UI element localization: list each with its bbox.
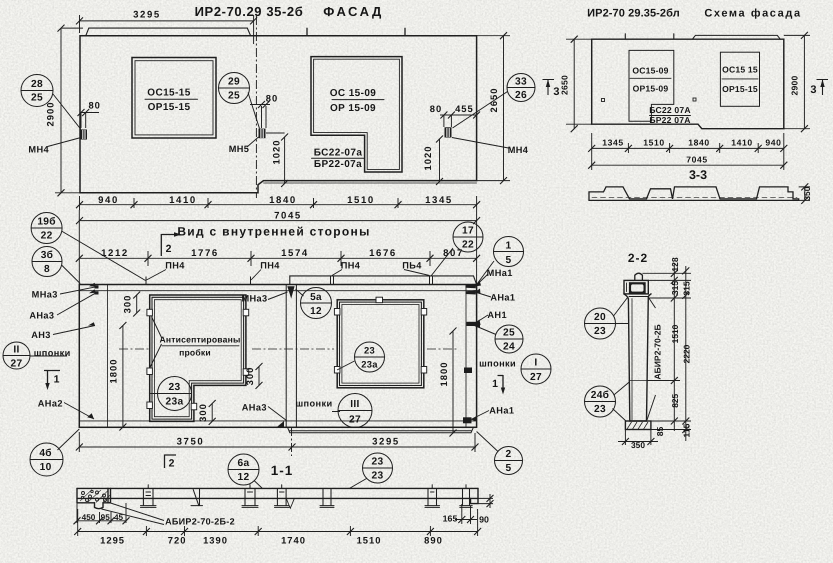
svg-text:22: 22 bbox=[41, 231, 53, 242]
svg-text:940: 940 bbox=[765, 138, 781, 148]
svg-text:23: 23 bbox=[594, 326, 606, 337]
svg-text:720: 720 bbox=[168, 535, 187, 546]
svg-text:1: 1 bbox=[492, 378, 498, 390]
svg-text:80: 80 bbox=[430, 103, 442, 114]
svg-text:2650: 2650 bbox=[488, 88, 499, 113]
svg-text:ОР 15-09: ОР 15-09 bbox=[330, 103, 376, 114]
svg-text:23: 23 bbox=[594, 404, 606, 415]
svg-text:ОС15-15: ОС15-15 bbox=[147, 88, 190, 99]
svg-text:2900: 2900 bbox=[790, 76, 800, 96]
svg-text:МНа3: МНа3 bbox=[32, 290, 58, 300]
svg-text:Антисептированы: Антисептированы bbox=[159, 335, 240, 345]
svg-text:3: 3 bbox=[810, 84, 816, 96]
svg-text:АН3: АН3 bbox=[31, 330, 51, 340]
svg-text:Вид с внутренней стороны: Вид с внутренней стороны bbox=[177, 225, 370, 239]
svg-text:23: 23 bbox=[372, 457, 384, 468]
svg-text:2: 2 bbox=[166, 243, 172, 255]
svg-text:315: 315 bbox=[670, 281, 680, 296]
svg-text:ПЬ4: ПЬ4 bbox=[402, 261, 422, 271]
svg-text:1390: 1390 bbox=[203, 535, 228, 546]
svg-text:1510: 1510 bbox=[670, 324, 680, 343]
svg-text:ОС 15-09: ОС 15-09 bbox=[330, 88, 377, 99]
svg-text:24: 24 bbox=[503, 342, 515, 353]
svg-text:1840: 1840 bbox=[688, 138, 710, 148]
svg-text:1840: 1840 bbox=[269, 195, 297, 206]
svg-text:АБИР2-70-2Б: АБИР2-70-2Б bbox=[653, 324, 663, 379]
svg-text:300: 300 bbox=[197, 403, 208, 422]
svg-text:807: 807 bbox=[443, 248, 464, 259]
svg-text:300: 300 bbox=[122, 295, 133, 314]
svg-text:ФАСАД: ФАСАД bbox=[323, 4, 384, 19]
svg-text:Схема фасада: Схема фасада bbox=[704, 8, 801, 20]
svg-text:1740: 1740 bbox=[281, 535, 306, 546]
svg-text:АНа1: АНа1 bbox=[489, 406, 514, 416]
svg-text:890: 890 bbox=[424, 535, 443, 546]
svg-text:22: 22 bbox=[462, 240, 474, 251]
svg-text:4б: 4б bbox=[39, 448, 52, 459]
svg-text:27: 27 bbox=[349, 415, 361, 426]
svg-text:БС22 07А: БС22 07А bbox=[649, 105, 691, 115]
svg-text:II: II bbox=[13, 345, 19, 356]
svg-text:23: 23 bbox=[364, 345, 375, 356]
svg-text:20: 20 bbox=[594, 312, 606, 323]
svg-text:1510: 1510 bbox=[357, 535, 382, 546]
svg-text:АНа2: АНа2 bbox=[38, 399, 63, 409]
svg-text:МН5: МН5 bbox=[229, 144, 250, 154]
svg-text:26: 26 bbox=[515, 90, 527, 101]
svg-text:128: 128 bbox=[670, 257, 680, 272]
svg-text:25: 25 bbox=[503, 328, 515, 339]
svg-text:23: 23 bbox=[372, 471, 384, 482]
svg-text:455: 455 bbox=[455, 103, 474, 114]
svg-text:1676: 1676 bbox=[369, 248, 397, 259]
svg-text:25: 25 bbox=[228, 91, 240, 102]
svg-text:23: 23 bbox=[169, 382, 181, 393]
svg-text:7045: 7045 bbox=[686, 155, 708, 165]
svg-text:2: 2 bbox=[169, 458, 175, 470]
svg-text:1212: 1212 bbox=[101, 248, 129, 259]
svg-text:12: 12 bbox=[310, 306, 322, 317]
svg-text:3295: 3295 bbox=[133, 10, 161, 21]
svg-text:29: 29 bbox=[228, 77, 240, 88]
svg-text:АНа3: АНа3 bbox=[29, 311, 54, 321]
svg-text:1345: 1345 bbox=[602, 138, 624, 148]
svg-text:АБИР2-70-2Б-2: АБИР2-70-2Б-2 bbox=[165, 517, 235, 527]
svg-text:350: 350 bbox=[802, 186, 812, 200]
svg-text:3б: 3б bbox=[41, 250, 54, 261]
svg-text:90: 90 bbox=[479, 515, 489, 525]
svg-text:2: 2 bbox=[506, 449, 512, 460]
svg-text:6а: 6а bbox=[238, 458, 250, 469]
svg-text:2900: 2900 bbox=[45, 102, 56, 127]
svg-text:МНа1: МНа1 bbox=[487, 268, 513, 278]
svg-text:300: 300 bbox=[244, 367, 255, 386]
svg-text:ИР2-70 29.35-2бл: ИР2-70 29.35-2бл bbox=[587, 8, 680, 20]
svg-text:1020: 1020 bbox=[422, 146, 433, 171]
svg-text:МНа3: МНа3 bbox=[241, 294, 267, 304]
svg-text:1295: 1295 bbox=[100, 535, 125, 546]
svg-text:ОР15-15: ОР15-15 bbox=[722, 84, 758, 94]
svg-text:пробки: пробки bbox=[179, 348, 211, 358]
svg-text:450: 450 bbox=[82, 513, 96, 522]
svg-text:1510: 1510 bbox=[347, 195, 375, 206]
svg-text:27: 27 bbox=[530, 372, 542, 383]
svg-text:12: 12 bbox=[238, 472, 250, 483]
svg-text:2-2: 2-2 bbox=[628, 251, 648, 265]
svg-text:шпонки: шпонки bbox=[295, 399, 332, 409]
svg-text:350: 350 bbox=[631, 440, 645, 450]
svg-text:23а: 23а bbox=[361, 359, 378, 370]
svg-text:ПН4: ПН4 bbox=[165, 261, 185, 271]
svg-text:2220: 2220 bbox=[682, 344, 692, 363]
svg-text:28: 28 bbox=[31, 79, 43, 90]
svg-text:ОР15-15: ОР15-15 bbox=[148, 102, 191, 113]
svg-text:33: 33 bbox=[515, 77, 527, 88]
svg-text:1776: 1776 bbox=[191, 248, 219, 259]
svg-text:27: 27 bbox=[11, 359, 23, 370]
svg-text:1: 1 bbox=[506, 241, 512, 252]
svg-text:25: 25 bbox=[31, 93, 43, 104]
svg-text:I: I bbox=[534, 358, 537, 369]
svg-text:1: 1 bbox=[54, 374, 60, 386]
svg-text:315: 315 bbox=[682, 281, 692, 296]
svg-text:1800: 1800 bbox=[108, 359, 119, 384]
svg-text:АН1: АН1 bbox=[487, 310, 507, 320]
svg-text:ИР2-70.29 35-2б: ИР2-70.29 35-2б bbox=[195, 4, 304, 19]
svg-text:115: 115 bbox=[682, 423, 692, 437]
svg-text:7045: 7045 bbox=[274, 211, 302, 222]
svg-text:1800: 1800 bbox=[438, 362, 449, 387]
svg-text:ПН4: ПН4 bbox=[260, 261, 280, 271]
svg-text:165: 165 bbox=[443, 514, 458, 524]
svg-text:1-1: 1-1 bbox=[271, 463, 294, 478]
svg-text:17: 17 bbox=[462, 226, 474, 237]
svg-text:5а: 5а bbox=[310, 292, 322, 303]
svg-text:АНа3: АНа3 bbox=[242, 403, 267, 413]
svg-text:1574: 1574 bbox=[281, 248, 309, 259]
svg-text:ПН4: ПН4 bbox=[341, 261, 361, 271]
svg-text:III: III bbox=[350, 399, 359, 410]
svg-text:шпонки: шпонки bbox=[34, 348, 71, 358]
svg-text:ОС15 15: ОС15 15 bbox=[722, 65, 758, 75]
svg-text:МН4: МН4 bbox=[508, 145, 529, 155]
svg-text:1410: 1410 bbox=[731, 138, 753, 148]
svg-text:5: 5 bbox=[506, 255, 512, 266]
svg-text:АНа1: АНа1 bbox=[490, 293, 515, 303]
svg-text:24б: 24б bbox=[591, 390, 610, 401]
svg-text:23а: 23а bbox=[166, 397, 184, 408]
svg-text:45: 45 bbox=[114, 513, 124, 522]
svg-text:2650: 2650 bbox=[560, 75, 570, 95]
svg-text:1510: 1510 bbox=[643, 138, 665, 148]
svg-text:шпонки: шпонки bbox=[479, 359, 516, 369]
svg-text:БР22 07А: БР22 07А bbox=[649, 115, 690, 125]
svg-text:3-3: 3-3 bbox=[689, 168, 707, 182]
svg-text:1020: 1020 bbox=[271, 140, 282, 165]
svg-text:БС22-07а: БС22-07а bbox=[314, 148, 363, 159]
svg-text:8: 8 bbox=[44, 264, 50, 275]
svg-text:БР22-07а: БР22-07а bbox=[314, 159, 362, 170]
svg-text:80: 80 bbox=[266, 93, 278, 104]
svg-text:1345: 1345 bbox=[425, 195, 453, 206]
svg-text:ОР15-09: ОР15-09 bbox=[633, 84, 669, 94]
svg-text:10: 10 bbox=[40, 462, 52, 473]
svg-text:80: 80 bbox=[88, 100, 100, 111]
svg-text:19б: 19б bbox=[37, 217, 56, 228]
svg-text:МН4: МН4 bbox=[28, 145, 49, 155]
svg-text:3750: 3750 bbox=[177, 437, 205, 448]
svg-text:1410: 1410 bbox=[169, 195, 197, 206]
svg-text:940: 940 bbox=[98, 195, 119, 206]
svg-text:3295: 3295 bbox=[372, 437, 400, 448]
svg-text:ОС15-09: ОС15-09 bbox=[632, 66, 668, 76]
svg-text:85: 85 bbox=[655, 427, 665, 437]
svg-text:825: 825 bbox=[670, 393, 680, 407]
svg-text:95: 95 bbox=[101, 513, 111, 522]
svg-text:5: 5 bbox=[506, 463, 512, 474]
